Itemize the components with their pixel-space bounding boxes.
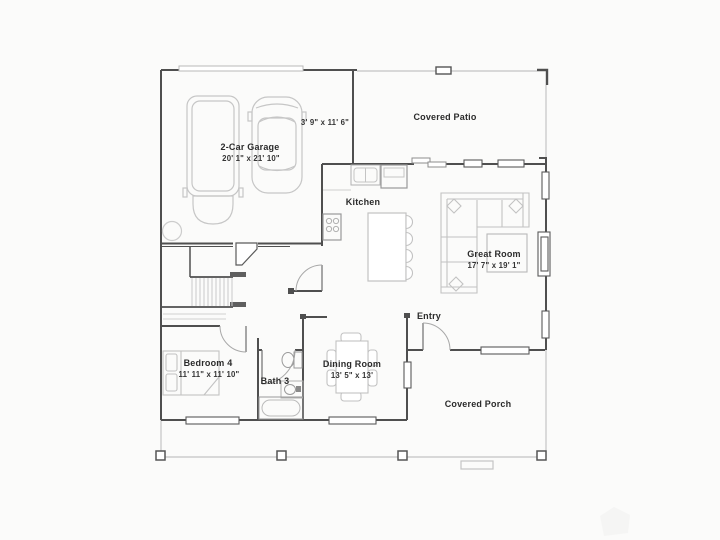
covered-porch-label: Covered Porch: [445, 399, 512, 409]
burner-4: [333, 226, 338, 231]
porch-post-1: [156, 451, 165, 460]
sofa-outline: [441, 193, 529, 293]
porch-posts: [156, 451, 546, 460]
vanity-faucet: [296, 386, 301, 392]
truck-mirror-right: [239, 188, 243, 197]
garage-label: 2-Car Garage: [221, 142, 280, 152]
refrigerator-inner: [384, 168, 404, 177]
patio-ne-corner: [537, 70, 547, 85]
dining-south-window: [329, 417, 376, 424]
closet-rails: [163, 314, 226, 319]
car-hood-line: [256, 104, 298, 108]
truck-cab: [193, 196, 233, 224]
patio-post: [436, 67, 451, 74]
interior-walls: [161, 244, 327, 421]
great-room-north-window-2: [498, 160, 524, 167]
great-room-north-window-1: [464, 160, 482, 167]
water-heater-icon: [163, 222, 182, 241]
garage-door: [179, 66, 303, 71]
toilet-bowl: [282, 353, 294, 368]
bedroom-window: [186, 417, 239, 424]
bath-3-label: Bath 3: [261, 376, 290, 386]
entry-label: Entry: [417, 311, 441, 321]
dining-room-label: Dining Room: [323, 359, 381, 369]
watermark-logo: [600, 507, 630, 536]
garage-entry-door: [236, 243, 257, 265]
stair-rail-cap-top: [230, 272, 246, 277]
patio-slider-panel-outer: [412, 158, 430, 163]
burner-2: [333, 218, 338, 223]
bedroom-4-dims: 11' 11" x 11' 10": [179, 370, 240, 379]
stair-treads: [192, 278, 232, 306]
sofa-pillow-left: [447, 199, 461, 213]
great-room-label: Great Room: [467, 249, 521, 259]
east-window-lower: [542, 311, 549, 338]
bedroom-4-label: Bedroom 4: [184, 358, 233, 368]
stool-2: [406, 233, 413, 246]
truck-mirror-left: [183, 188, 187, 197]
sofa-pillow-bottom: [449, 277, 463, 291]
kitchen-label: Kitchen: [346, 197, 380, 207]
covered-patio-label: Covered Patio: [413, 112, 476, 122]
east-niche-inner: [541, 237, 548, 271]
bed-fold: [204, 377, 219, 395]
stairs-icon: [192, 278, 232, 306]
porch-step: [461, 461, 493, 469]
great-room-south-window: [481, 347, 529, 354]
porch-post-4: [537, 451, 546, 460]
floor-plan-canvas: Covered Patio 3' 9" x 11' 6" 2-Car Garag…: [0, 0, 720, 540]
island-top: [368, 213, 406, 281]
bedroom-door-swing: [220, 326, 246, 352]
dining-wall-cap: [300, 314, 306, 319]
patio-slider-panel-inner: [428, 162, 446, 167]
burner-1: [326, 218, 331, 223]
stool-4: [406, 267, 413, 280]
stool-3: [406, 250, 413, 263]
pantry-door-swing: [296, 265, 322, 291]
vanity-sink: [285, 385, 296, 395]
great-room-dims: 17' 7" x 19' 1": [467, 261, 520, 270]
entry-wall-cap: [404, 313, 410, 318]
porch-post-3: [398, 451, 407, 460]
kitchen-island: [368, 213, 413, 281]
stool-1: [406, 216, 413, 229]
floor-plan-drawing: Covered Patio 3' 9" x 11' 6" 2-Car Garag…: [0, 0, 720, 540]
burner-3: [326, 226, 331, 231]
east-window-upper: [542, 172, 549, 199]
dining-room-dims: 13' 5" x 13': [331, 371, 373, 380]
bathtub-inner: [262, 400, 300, 416]
dining-east-window: [404, 362, 411, 388]
sectional-sofa-icon: [441, 193, 529, 293]
pantry-wall-cap: [288, 288, 294, 294]
garage-storage-dims: 3' 9" x 11' 6": [301, 118, 349, 127]
garage-dims: 20' 1" x 21' 10": [222, 154, 280, 163]
sofa-pillow-right: [509, 199, 523, 213]
bed-pillow-1: [166, 354, 177, 371]
porch-post-2: [277, 451, 286, 460]
bed-pillow-2: [166, 374, 177, 391]
front-door-swing: [423, 323, 450, 350]
